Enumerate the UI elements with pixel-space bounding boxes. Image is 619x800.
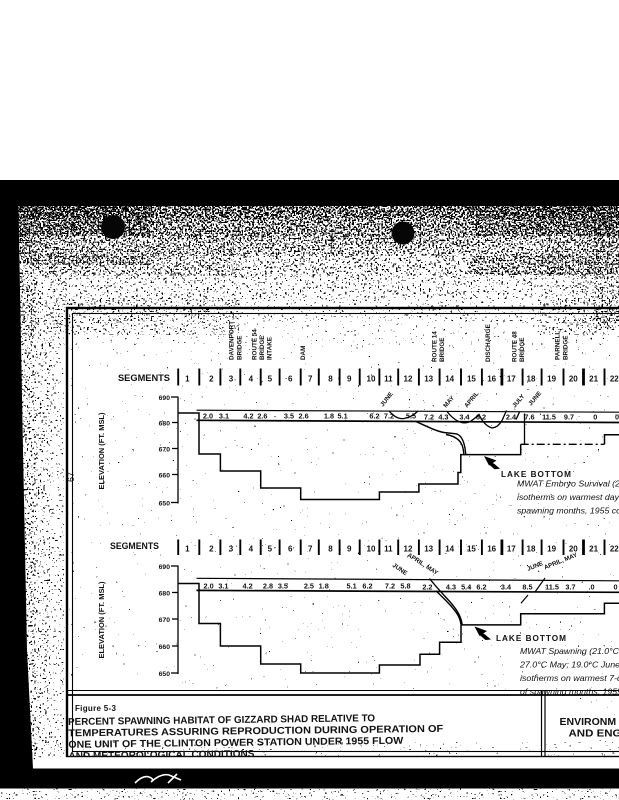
svg-text:2.8: 2.8 xyxy=(263,581,273,590)
svg-text:5.8: 5.8 xyxy=(400,581,410,590)
svg-text:15: 15 xyxy=(467,375,476,384)
svg-text:BRIDGE: BRIDGE xyxy=(259,336,266,361)
svg-text:5: 5 xyxy=(268,545,273,554)
svg-text:3: 3 xyxy=(229,545,234,554)
svg-text:4: 4 xyxy=(249,375,254,384)
svg-text:21: 21 xyxy=(589,545,598,554)
svg-text:MWAT Embryo Survival (2: MWAT Embryo Survival (2 xyxy=(517,480,619,489)
svg-text:8: 8 xyxy=(328,545,333,554)
svg-text:ENVIRONM: ENVIRONM xyxy=(560,716,617,728)
svg-text:660: 660 xyxy=(159,644,171,651)
svg-text:14: 14 xyxy=(445,545,454,554)
svg-text:AND ENG: AND ENG xyxy=(569,728,619,740)
svg-text:5.1: 5.1 xyxy=(347,581,357,590)
svg-text:2.0: 2.0 xyxy=(203,411,213,420)
svg-text:3.5: 3.5 xyxy=(284,411,294,420)
svg-text:22: 22 xyxy=(610,375,619,384)
svg-text:DISCHARGE: DISCHARGE xyxy=(485,324,492,362)
svg-text:ELEVATION (FT. MSL): ELEVATION (FT. MSL) xyxy=(97,581,106,659)
svg-text:660: 660 xyxy=(159,473,171,480)
svg-text:1.8: 1.8 xyxy=(324,411,334,420)
svg-text:7.2: 7.2 xyxy=(384,411,394,420)
svg-text:4.3: 4.3 xyxy=(446,582,456,591)
svg-text:DAM: DAM xyxy=(300,346,307,360)
svg-text:19: 19 xyxy=(547,545,556,554)
svg-text:3.4: 3.4 xyxy=(501,582,512,591)
svg-text:0: 0 xyxy=(593,413,597,422)
svg-text:9: 9 xyxy=(347,375,352,384)
svg-text:5.4: 5.4 xyxy=(461,582,472,591)
svg-text:12: 12 xyxy=(404,375,413,384)
svg-text:ROUTE 48: ROUTE 48 xyxy=(512,331,519,362)
svg-text:19: 19 xyxy=(547,375,556,384)
svg-text:3: 3 xyxy=(229,375,234,384)
svg-text:690: 690 xyxy=(159,395,171,402)
svg-text:22: 22 xyxy=(610,545,619,554)
svg-text:3.1: 3.1 xyxy=(219,411,229,420)
svg-text:1: 1 xyxy=(185,545,190,554)
svg-text:11.5: 11.5 xyxy=(545,582,559,591)
svg-text:9.7: 9.7 xyxy=(564,413,574,422)
svg-text:680: 680 xyxy=(159,421,171,428)
svg-text:13: 13 xyxy=(424,545,433,554)
svg-text:6.2: 6.2 xyxy=(369,411,379,420)
svg-text:17: 17 xyxy=(507,375,516,384)
svg-text:DAVENPORT: DAVENPORT xyxy=(229,321,236,360)
svg-text:670: 670 xyxy=(159,617,171,624)
svg-text:3.1: 3.1 xyxy=(218,581,228,590)
svg-text:MWAT Spawning (21.0°C: MWAT Spawning (21.0°C xyxy=(520,647,619,656)
svg-text:7.2: 7.2 xyxy=(385,581,395,590)
svg-text:15: 15 xyxy=(467,545,476,554)
svg-text:3.4: 3.4 xyxy=(459,413,470,422)
svg-text:650: 650 xyxy=(159,671,171,678)
svg-text:PARNELL: PARNELL xyxy=(555,331,562,360)
svg-text:0: 0 xyxy=(615,413,619,422)
svg-text:16: 16 xyxy=(487,545,496,554)
svg-text:3.7: 3.7 xyxy=(565,582,575,591)
svg-text:5: 5 xyxy=(268,375,273,384)
svg-text:670: 670 xyxy=(159,447,171,454)
svg-text:6: 6 xyxy=(288,545,293,554)
svg-text:11: 11 xyxy=(384,375,393,384)
svg-text:680: 680 xyxy=(159,591,171,598)
svg-text:BRIDGE: BRIDGE xyxy=(439,338,446,363)
svg-text:SEGMENTS: SEGMENTS xyxy=(118,372,170,383)
svg-text:6: 6 xyxy=(288,375,293,384)
svg-text:21: 21 xyxy=(589,375,598,384)
svg-text:BRIDGE: BRIDGE xyxy=(237,336,244,361)
svg-text:BRIDGE: BRIDGE xyxy=(563,336,570,361)
svg-text:2.6: 2.6 xyxy=(299,411,309,420)
svg-text:11: 11 xyxy=(384,545,393,554)
svg-text:4.3: 4.3 xyxy=(438,413,448,422)
svg-text:2: 2 xyxy=(209,375,214,384)
svg-text:5.1: 5.1 xyxy=(338,411,348,420)
svg-text:10: 10 xyxy=(367,545,376,554)
svg-text:650: 650 xyxy=(159,501,171,508)
svg-text:27.0°C May; 19.0°C June): 27.0°C May; 19.0°C June) xyxy=(519,661,619,670)
svg-text:10: 10 xyxy=(367,375,376,384)
svg-text:0: 0 xyxy=(613,582,617,591)
svg-text:7: 7 xyxy=(308,545,313,554)
svg-text:2.0: 2.0 xyxy=(204,581,214,590)
svg-text:Figure 5-3: Figure 5-3 xyxy=(75,704,116,713)
svg-text:BRIDGE: BRIDGE xyxy=(519,338,526,363)
svg-text:ROUTE 54: ROUTE 54 xyxy=(252,329,259,360)
svg-text:4.2: 4.2 xyxy=(243,581,253,590)
svg-text:17: 17 xyxy=(507,545,516,554)
svg-text:690: 690 xyxy=(159,564,171,571)
svg-text:ELEVATION (FT. MSL): ELEVATION (FT. MSL) xyxy=(97,412,106,490)
svg-text:16: 16 xyxy=(487,375,496,384)
svg-text:7.2: 7.2 xyxy=(424,413,434,422)
svg-text:7: 7 xyxy=(308,375,313,384)
svg-text:11.5: 11.5 xyxy=(542,413,556,422)
svg-text:6.2: 6.2 xyxy=(476,582,486,591)
svg-text:18: 18 xyxy=(527,545,536,554)
svg-text:14: 14 xyxy=(445,375,454,384)
svg-text:9: 9 xyxy=(347,545,352,554)
svg-text:.0: .0 xyxy=(588,582,594,591)
svg-text:8: 8 xyxy=(328,375,333,384)
svg-text:4.2: 4.2 xyxy=(243,411,253,420)
svg-text:ROUTE 14: ROUTE 14 xyxy=(432,331,439,362)
svg-text:2: 2 xyxy=(209,545,214,554)
svg-text:2.6: 2.6 xyxy=(257,411,267,420)
svg-text:18: 18 xyxy=(527,375,536,384)
svg-text:INTAKE: INTAKE xyxy=(267,337,274,360)
svg-text:1.8: 1.8 xyxy=(319,581,329,590)
svg-text:LAKE BOTTOM: LAKE BOTTOM xyxy=(496,634,567,643)
svg-text:7.6: 7.6 xyxy=(524,413,534,422)
svg-text:8.5: 8.5 xyxy=(522,582,532,591)
svg-text:2.2: 2.2 xyxy=(422,582,432,591)
svg-text:isotherms on warmest day: isotherms on warmest day xyxy=(517,493,619,502)
svg-text:2.5: 2.5 xyxy=(304,581,314,590)
svg-text:3.5: 3.5 xyxy=(278,581,288,590)
svg-text:2.4: 2.4 xyxy=(506,413,517,422)
svg-text:13: 13 xyxy=(424,375,433,384)
svg-text:6.2: 6.2 xyxy=(362,581,372,590)
svg-text:isotherms on warmest 7-d: isotherms on warmest 7-d xyxy=(520,674,619,683)
svg-text:1: 1 xyxy=(185,375,190,384)
svg-text:spawning months, 1955 co: spawning months, 1955 co xyxy=(517,507,619,516)
svg-text:LAKE BOTTOM: LAKE BOTTOM xyxy=(501,470,572,479)
svg-text:20: 20 xyxy=(569,375,578,384)
svg-text:4: 4 xyxy=(249,545,254,554)
svg-text:SEGMENTS: SEGMENTS xyxy=(110,540,159,551)
